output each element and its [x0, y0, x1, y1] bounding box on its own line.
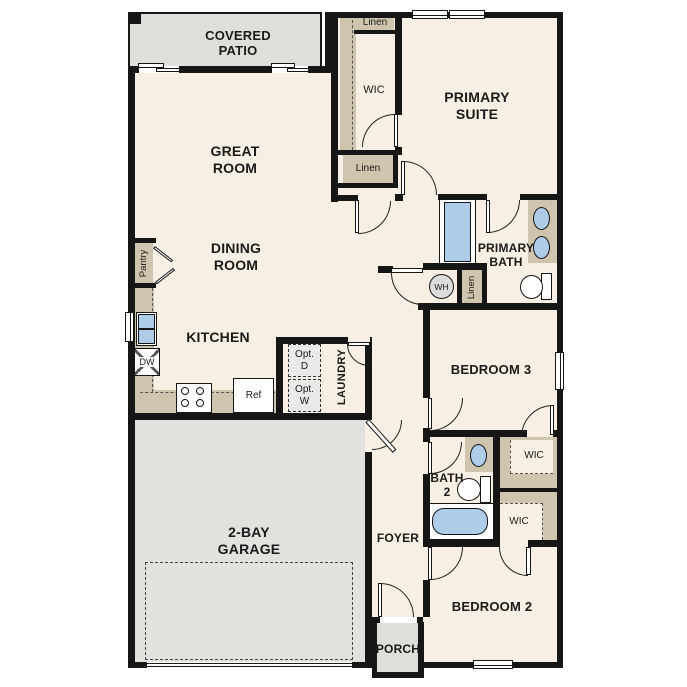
floor-plan: DW Ref WH: [0, 0, 687, 687]
wall-suite-bath: [438, 194, 487, 200]
refrigerator-icon: Ref: [233, 378, 274, 413]
linen-top-wall: [354, 30, 398, 34]
linen-hall-label: Linen: [467, 276, 478, 299]
primary-wic-strip: [340, 18, 356, 151]
garage-door-swing-dash: [145, 562, 353, 660]
garage-label: 2-BAY GARAGE: [199, 524, 299, 557]
kitchen-sink-bowl-top-icon: [138, 314, 155, 329]
bedroom2-label: BEDROOM 2: [432, 599, 552, 614]
wall-wic-left: [331, 12, 338, 202]
great-room-label: GREAT ROOM: [185, 143, 285, 176]
wall-garage-right: [365, 337, 372, 668]
primary-toilet-bowl-icon: [520, 275, 543, 299]
patio-slider-2b: [287, 68, 309, 72]
wall-bedroom3-top: [418, 303, 563, 310]
front-door-leaf: [378, 583, 382, 617]
primary-window-1: [412, 10, 448, 19]
wall-garage-top: [128, 413, 372, 420]
pantry-label: Pantry: [139, 249, 150, 276]
bedroom3-label: BEDROOM 3: [432, 362, 550, 377]
burner-1: [181, 387, 189, 395]
bath2-label: BATH 2: [428, 471, 466, 499]
bedroom2-window: [473, 660, 513, 669]
bedroom2-wic-door-leaf: [526, 547, 531, 575]
optional-washer-box: Opt. W: [288, 379, 321, 412]
wall-wic-suite: [395, 12, 402, 115]
bedroom2-door-leaf: [428, 547, 432, 580]
porch-label: PORCH: [374, 642, 422, 656]
primary-wic-door-leaf: [394, 114, 398, 147]
wall-exterior-left: [128, 66, 135, 668]
bath2-door-leaf: [428, 442, 432, 474]
garage-door-line-2: [147, 666, 352, 667]
dishwasher-label: DW: [139, 357, 156, 367]
wall-corridor-4: [423, 580, 430, 617]
burner-4: [196, 399, 204, 407]
wall-linen-mid-right: [393, 150, 398, 188]
dishwasher-icon: DW: [134, 348, 160, 376]
wall-linen-mid-top: [338, 150, 398, 155]
water-heater-label: WH: [434, 282, 448, 292]
bedroom3-wic-label: WIC: [520, 450, 548, 462]
kitchen-window: [125, 312, 134, 342]
garage-door-line-1: [147, 663, 352, 664]
pantry-label-wrap: Pantry: [134, 243, 154, 283]
linen-mid-label: Linen: [350, 163, 386, 175]
bath2-toilet-tank: [480, 476, 491, 503]
optional-dryer-box: Opt. D: [288, 344, 321, 377]
foyer-label: FOYER: [372, 531, 424, 545]
linen-top-label: Linen: [356, 17, 394, 29]
primary-wic-rod-dash: [352, 20, 353, 150]
primary-suite-label: PRIMARY SUITE: [420, 89, 534, 122]
burner-2: [196, 387, 204, 395]
hall-door-leaf: [355, 200, 359, 233]
water-heater-icon: WH: [429, 274, 454, 299]
wall-exterior-right: [557, 12, 563, 668]
wall-wic-divider: [497, 488, 563, 492]
wall-vanity-top: [520, 194, 557, 200]
linen-hall-label-wrap: Linen: [462, 270, 482, 305]
bedroom3-window: [555, 352, 564, 390]
bedroom2-wic-label: WIC: [505, 516, 533, 528]
primary-bath-door-leaf: [486, 200, 490, 233]
primary-wic-label: WIC: [357, 84, 391, 97]
suite-door-leaf: [401, 161, 405, 195]
laundry-label: LAUNDRY: [336, 349, 348, 405]
bathtub-icon: [432, 508, 488, 535]
opening-bedroom2-wic-door: [500, 540, 528, 547]
kitchen-sink-bowl-bottom-icon: [138, 329, 155, 344]
refrigerator-label: Ref: [246, 390, 262, 401]
opening-front-door: [380, 617, 417, 623]
wall-porch-bottom: [372, 672, 424, 678]
bath2-sink-icon: [470, 444, 487, 467]
laundry-label-wrap: LAUNDRY: [330, 342, 354, 412]
dining-room-label: DINING ROOM: [186, 240, 286, 273]
covered-patio-label: COVERED PATIO: [178, 28, 298, 59]
patio-corner-post: [128, 12, 141, 24]
kitchen-label: KITCHEN: [178, 329, 258, 346]
primary-sink-top-icon: [533, 207, 550, 230]
bedroom3-wic-door-leaf: [550, 405, 554, 435]
patio-slider-1b: [156, 68, 180, 72]
wall-corridor-1: [423, 310, 430, 398]
wall-linen-mid-bottom: [338, 183, 398, 188]
wall-hall-a: [331, 195, 358, 201]
bedroom3-door-leaf: [428, 398, 432, 429]
water-heater-door-leaf: [391, 268, 423, 273]
primary-window-2: [449, 10, 485, 19]
primary-bath-label: PRIMARY BATH: [465, 241, 547, 269]
burner-3: [181, 399, 189, 407]
wall-hall-b: [395, 194, 403, 201]
wall-bedroom2-top: [423, 540, 563, 547]
wall-laundry-left: [276, 337, 283, 420]
